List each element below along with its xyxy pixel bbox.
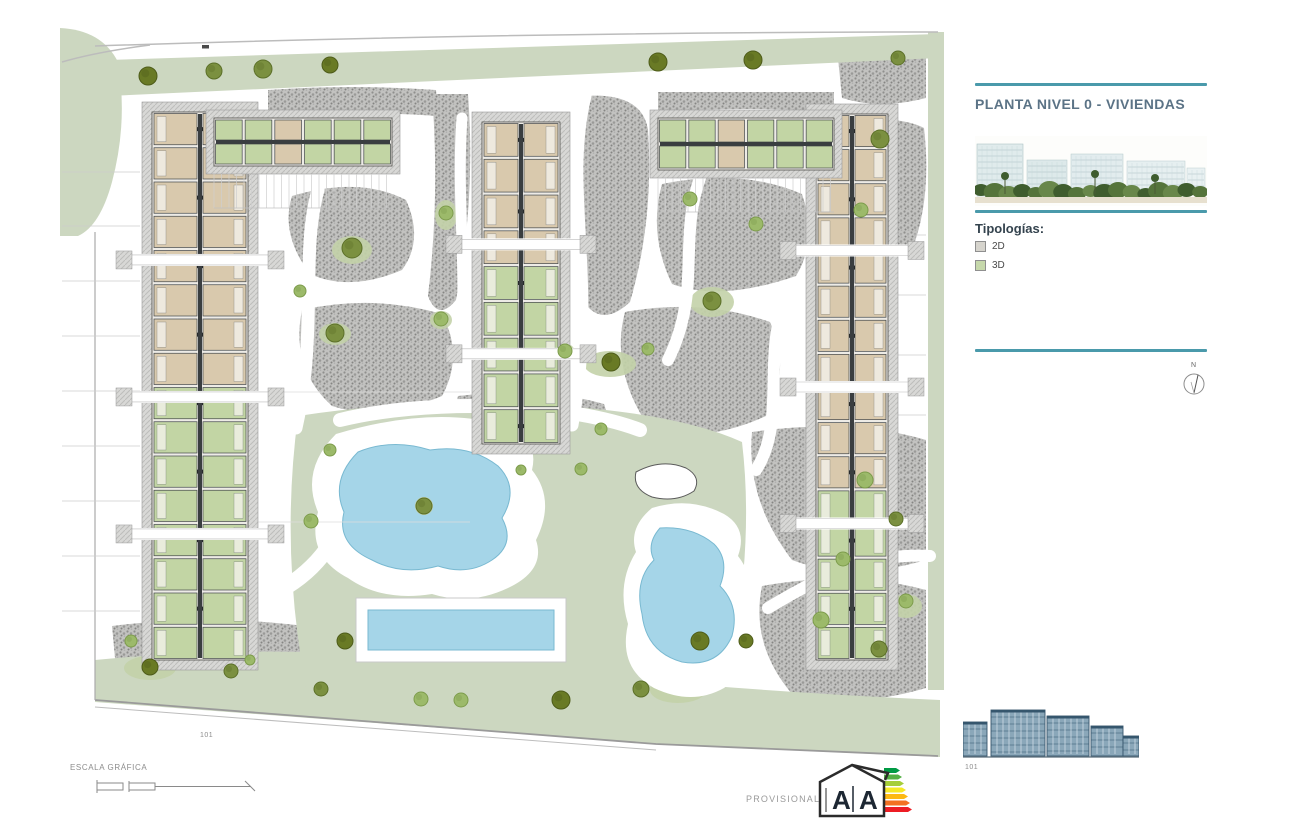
panel-divider-middle (975, 210, 1207, 213)
site-plan-layers (60, 28, 944, 757)
provisional-label: PROVISIONAL (746, 794, 820, 804)
drawing-sheet: 101 PLANTA NIVEL 0 - VIVIENDAS Tipología… (0, 0, 1290, 840)
panel-divider-top (975, 83, 1207, 86)
legend-swatch-3d (975, 260, 986, 271)
render-thumbnail (975, 136, 1207, 206)
scale-bar-label: ESCALA GRÁFICA (70, 763, 147, 772)
compass-needle-tail (1191, 382, 1194, 393)
site-reference-label: 101 (200, 732, 213, 739)
legend-swatch-2d (975, 241, 986, 252)
legend-label-2d: 2D (992, 241, 1005, 252)
compass-needle (1194, 375, 1198, 393)
site-plan (0, 0, 960, 840)
legend-heading: Tipologías: (975, 221, 1044, 236)
legend-label-3d: 3D (992, 260, 1005, 271)
elevation-reference-label: 101 (965, 764, 978, 771)
energy-letter-left: A (832, 785, 851, 815)
legend-item-2d: 2D (975, 241, 1005, 252)
north-compass: N (1176, 358, 1212, 402)
building-elevation (963, 700, 1139, 762)
energy-efficiency-logo: A A (812, 760, 912, 822)
scale-bar (95, 779, 263, 795)
energy-letter-right: A (859, 785, 878, 815)
render-ground (975, 197, 1207, 203)
legend-item-3d: 3D (975, 260, 1005, 271)
compass-n-label: N (1191, 362, 1196, 369)
page-title: PLANTA NIVEL 0 - VIVIENDAS (975, 96, 1185, 112)
panel-divider-bottom (975, 349, 1207, 352)
